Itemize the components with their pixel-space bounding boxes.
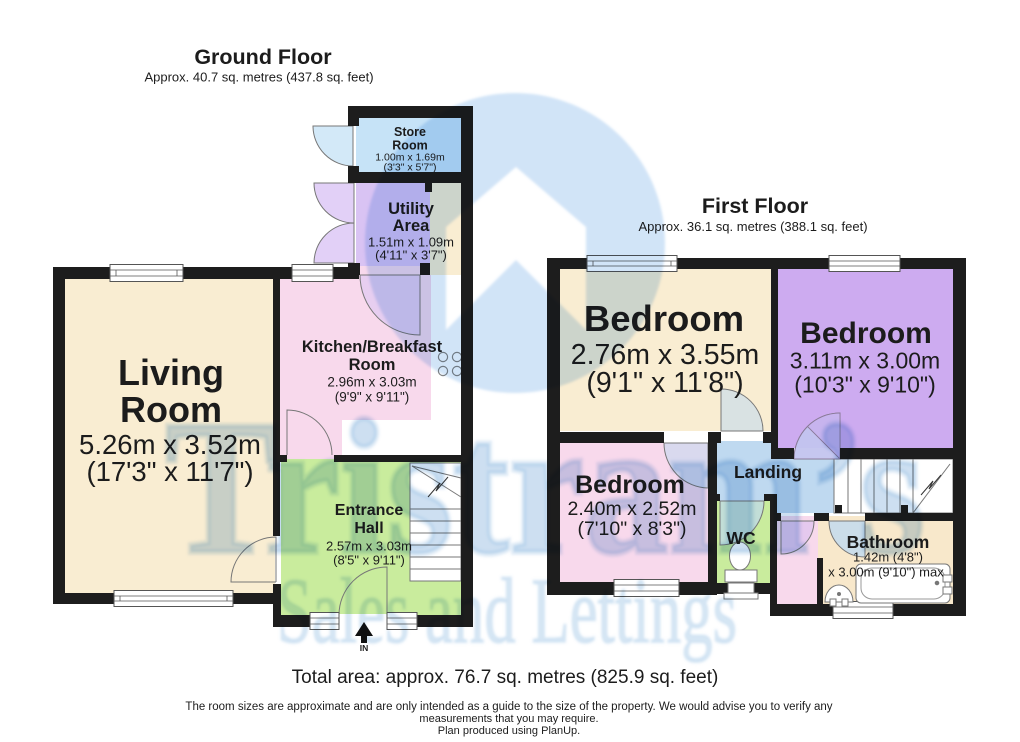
- svg-text:Plan produced using PlanUp.: Plan produced using PlanUp.: [438, 725, 580, 737]
- svg-text:measurements that you may requ: measurements that you may require.: [419, 713, 598, 725]
- svg-text:Approx. 36.1 sq. metres (388.1: Approx. 36.1 sq. metres (388.1 sq. feet): [638, 219, 867, 234]
- svg-text:Room: Room: [349, 356, 396, 374]
- svg-text:Bedroom: Bedroom: [800, 317, 932, 350]
- svg-text:Ground Floor: Ground Floor: [194, 45, 332, 69]
- svg-text:Sales and Lettings: Sales and Lettings: [277, 560, 737, 663]
- svg-text:First Floor: First Floor: [702, 194, 809, 218]
- svg-text:The room sizes are approximate: The room sizes are approximate and are o…: [185, 701, 832, 713]
- svg-text:Approx. 40.7 sq. metres (437.8: Approx. 40.7 sq. metres (437.8 sq. feet): [144, 70, 373, 85]
- svg-text:Total area: approx. 76.7 sq. m: Total area: approx. 76.7 sq. metres (825…: [292, 667, 719, 688]
- svg-text:3.11m x 3.00m: 3.11m x 3.00m: [790, 348, 940, 374]
